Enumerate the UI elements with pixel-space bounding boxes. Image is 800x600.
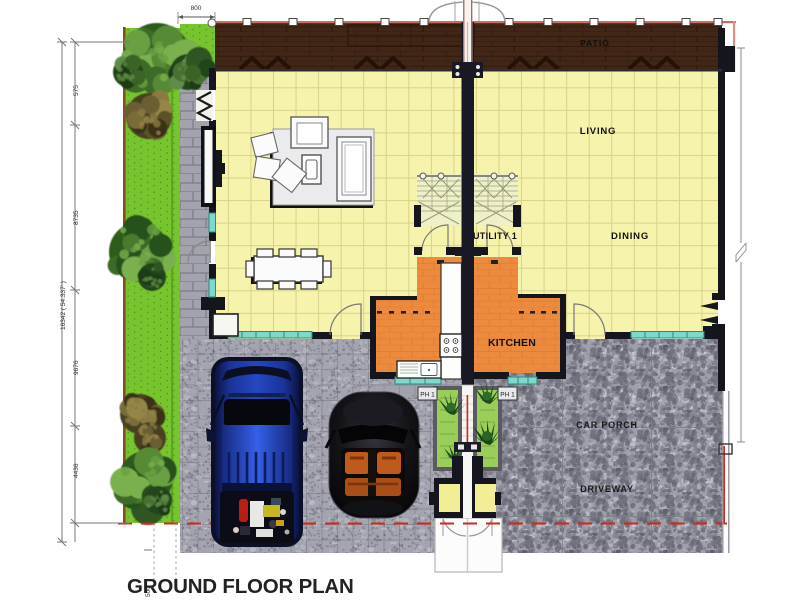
svg-text:8735: 8735 bbox=[73, 210, 80, 225]
svg-text:16342 ( 54.337' ): 16342 ( 54.337' ) bbox=[60, 281, 67, 330]
svg-text:UTILITY 1: UTILITY 1 bbox=[473, 231, 517, 241]
svg-text:PH 1: PH 1 bbox=[500, 392, 515, 399]
svg-text:KITCHEN: KITCHEN bbox=[488, 337, 536, 349]
svg-text:DINING: DINING bbox=[611, 231, 649, 242]
svg-text:LIVING: LIVING bbox=[580, 126, 616, 137]
svg-text:PH 1: PH 1 bbox=[420, 392, 435, 399]
svg-text:GROUND FLOOR PLAN: GROUND FLOOR PLAN bbox=[127, 575, 354, 598]
svg-text:800: 800 bbox=[191, 5, 202, 12]
svg-text:DRIVEWAY: DRIVEWAY bbox=[580, 484, 634, 494]
svg-text:575: 575 bbox=[73, 85, 80, 96]
svg-text:PATIO: PATIO bbox=[580, 38, 610, 48]
svg-text:9676: 9676 bbox=[73, 360, 80, 375]
svg-text:CAR PORCH: CAR PORCH bbox=[576, 420, 638, 430]
svg-text:4436: 4436 bbox=[73, 463, 80, 478]
